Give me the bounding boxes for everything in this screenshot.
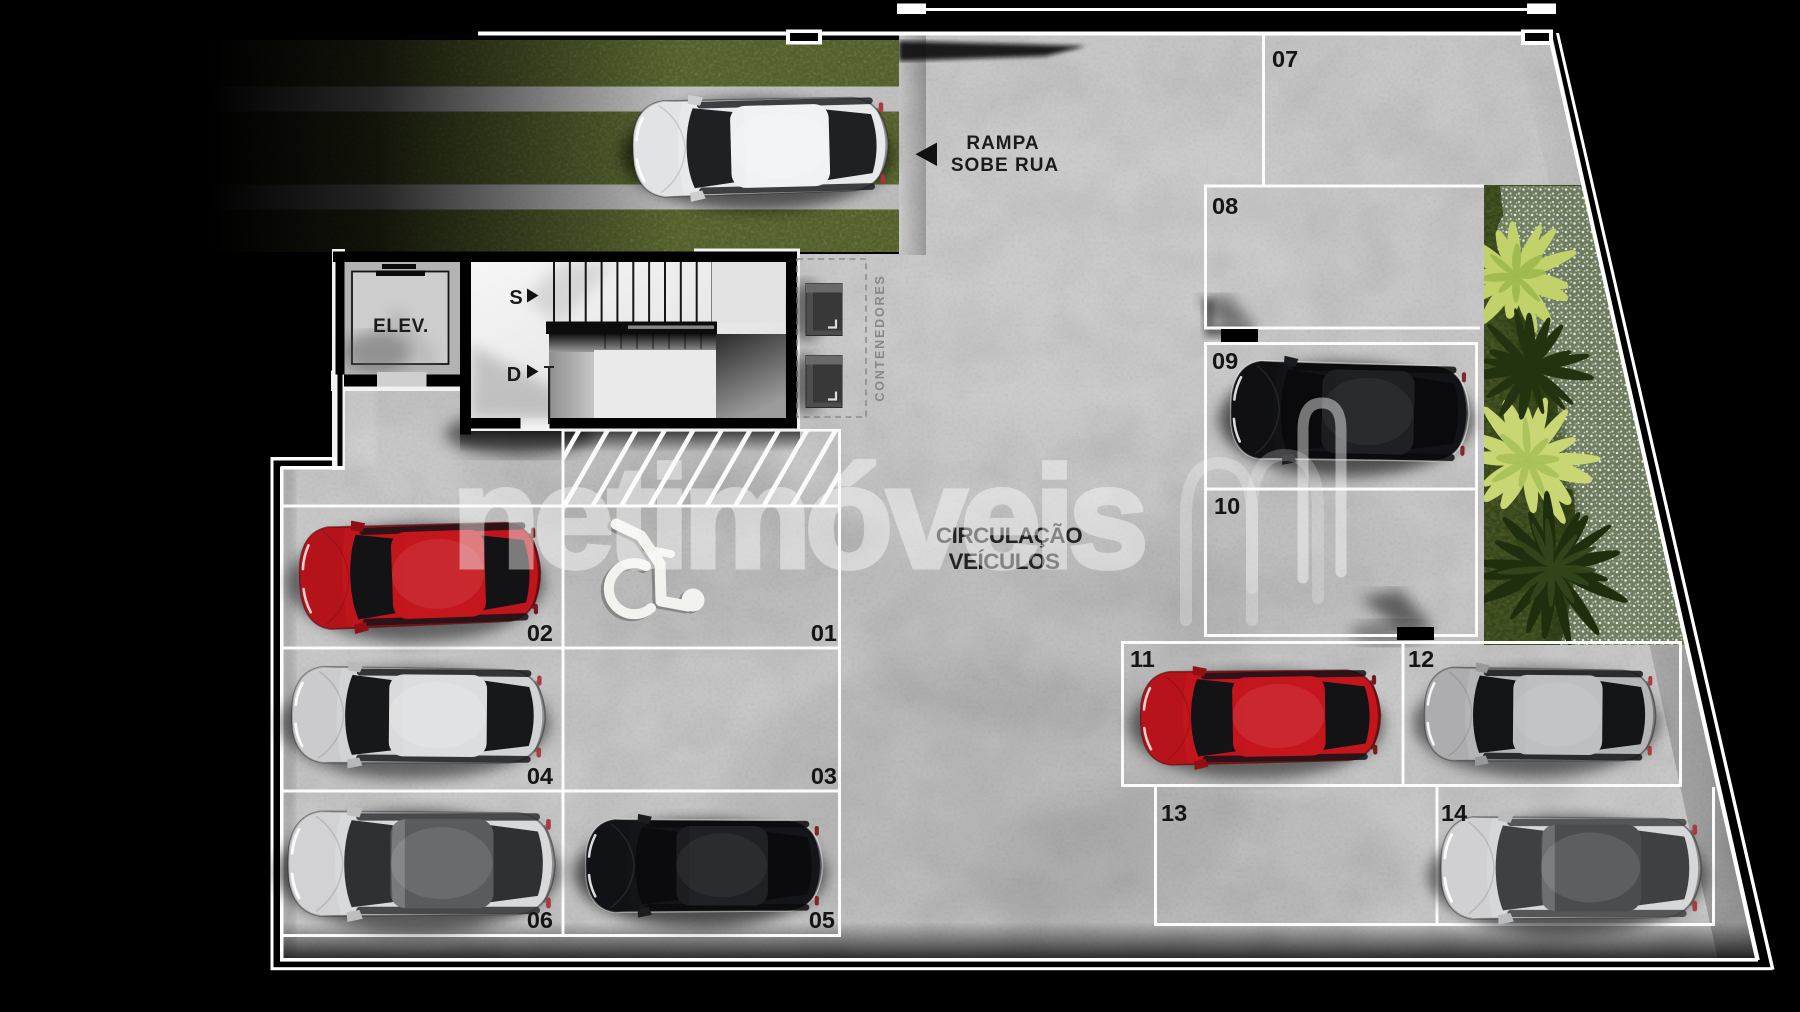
svg-text:RAMPA: RAMPA xyxy=(966,133,1039,154)
svg-text:ELEV.: ELEV. xyxy=(373,316,429,337)
svg-text:netimóveis: netimóveis xyxy=(452,437,1143,598)
svg-text:14: 14 xyxy=(1441,800,1467,826)
svg-text:01: 01 xyxy=(811,620,837,646)
svg-text:CONTENEDORES: CONTENEDORES xyxy=(873,274,887,401)
svg-text:04: 04 xyxy=(527,763,553,789)
svg-text:S: S xyxy=(509,287,522,309)
svg-text:SOBE RUA: SOBE RUA xyxy=(951,155,1059,176)
svg-text:05: 05 xyxy=(809,907,835,933)
svg-text:10: 10 xyxy=(1214,493,1240,519)
svg-text:13: 13 xyxy=(1161,800,1187,826)
svg-text:09: 09 xyxy=(1212,348,1238,374)
svg-text:03: 03 xyxy=(811,763,837,789)
svg-text:02: 02 xyxy=(527,620,553,646)
svg-text:06: 06 xyxy=(527,907,553,933)
svg-text:07: 07 xyxy=(1272,46,1298,72)
svg-text:11: 11 xyxy=(1130,646,1155,672)
svg-text:08: 08 xyxy=(1212,193,1238,219)
svg-text:D: D xyxy=(507,364,521,386)
svg-text:12: 12 xyxy=(1408,646,1434,672)
